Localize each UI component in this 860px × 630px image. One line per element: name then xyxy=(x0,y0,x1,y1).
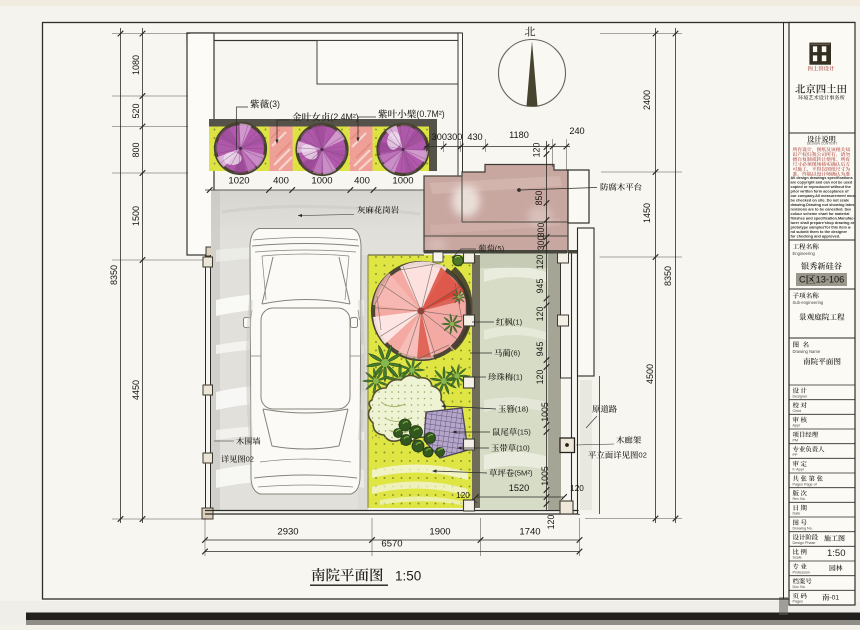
svg-text:Scale: Scale xyxy=(793,556,802,560)
svg-text:1520: 1520 xyxy=(509,483,529,493)
svg-text:1180: 1180 xyxy=(509,130,529,140)
svg-text:turer shall prepare'shop drawi: turer shall prepare'shop drawing or xyxy=(791,221,855,225)
svg-text:our company.All measurement mu: our company.All measurement must xyxy=(791,194,857,198)
svg-text:Drawing Name: Drawing Name xyxy=(793,349,821,354)
svg-text:02: 02 xyxy=(246,455,254,464)
svg-text:120: 120 xyxy=(535,370,545,385)
svg-text:Sub-engineering: Sub-engineering xyxy=(793,300,824,305)
svg-text:1:50: 1:50 xyxy=(827,548,846,559)
svg-text:All design drawings specificat: All design drawings specifications xyxy=(791,176,853,180)
svg-text:Profession: Profession xyxy=(793,570,810,574)
svg-text:(10): (10) xyxy=(516,444,530,453)
svg-text:120: 120 xyxy=(570,484,584,493)
svg-text:1020: 1020 xyxy=(228,175,249,186)
svg-text:1740: 1740 xyxy=(519,526,540,537)
svg-text:colour scheme chart for materi: colour scheme chart for material xyxy=(791,212,850,216)
svg-text:4500: 4500 xyxy=(645,364,655,384)
svg-text:-01: -01 xyxy=(829,595,839,602)
svg-text:PP: PP xyxy=(793,453,798,457)
svg-text:400: 400 xyxy=(354,175,370,186)
svg-text:1005: 1005 xyxy=(540,466,550,486)
svg-text:300: 300 xyxy=(536,236,546,251)
svg-text:(6): (6) xyxy=(511,349,521,358)
svg-text:Chkd: Chkd xyxy=(793,409,802,413)
svg-text:945: 945 xyxy=(535,279,545,294)
svg-text:(0.7M²): (0.7M²) xyxy=(416,109,444,119)
svg-text:finishes and specification.Man: finishes and specification.Manufac- xyxy=(791,217,856,221)
svg-text:(5M²): (5M²) xyxy=(514,469,533,478)
svg-text:nd submit them to the designer: nd submit them to the designer xyxy=(791,230,848,234)
svg-text:240: 240 xyxy=(569,126,584,136)
svg-text:1005: 1005 xyxy=(540,402,550,422)
svg-text:Doc No.: Doc No. xyxy=(793,585,806,589)
svg-text:be checked on site. Do not sca: be checked on site. Do not scale xyxy=(791,199,850,203)
svg-text:850: 850 xyxy=(534,191,544,206)
svg-text:Appr: Appr xyxy=(793,424,802,428)
svg-text:300: 300 xyxy=(536,223,546,238)
svg-text:(15): (15) xyxy=(517,428,531,437)
svg-text:120: 120 xyxy=(535,307,545,322)
svg-text:430: 430 xyxy=(467,132,482,142)
svg-text:DESIGN CONTENT: DESIGN CONTENT xyxy=(807,142,837,146)
svg-text:(2.4M²): (2.4M²) xyxy=(330,112,358,122)
svg-text:02: 02 xyxy=(638,451,647,460)
svg-text:1:50: 1:50 xyxy=(395,569,421,584)
svg-text:2400: 2400 xyxy=(642,90,652,110)
svg-text:1450: 1450 xyxy=(642,203,652,223)
svg-text:for checking and approved.: for checking and approved. xyxy=(791,235,841,239)
svg-text:Designer: Designer xyxy=(793,394,809,398)
svg-text:copied or reproduced without t: copied or reproduced without the xyxy=(791,185,851,189)
svg-text:8350: 8350 xyxy=(663,266,673,286)
svg-text:520: 520 xyxy=(131,103,141,118)
svg-text:Date: Date xyxy=(793,512,801,516)
svg-text:Rev No.: Rev No. xyxy=(793,497,806,501)
svg-text:1000: 1000 xyxy=(392,175,413,186)
svg-text:(1): (1) xyxy=(513,373,523,382)
svg-text:1080: 1080 xyxy=(131,55,141,75)
svg-text:(3): (3) xyxy=(269,99,280,109)
svg-text:2930: 2930 xyxy=(277,526,298,537)
svg-text:revisions are to be cancelled.: revisions are to be cancelled. See xyxy=(791,208,852,212)
svg-text:945: 945 xyxy=(535,342,545,357)
svg-text:300300: 300300 xyxy=(432,132,463,142)
svg-text:120: 120 xyxy=(546,515,556,530)
svg-text:are copyright and can not be u: are copyright and can not be used xyxy=(791,181,853,185)
svg-text:prior written form acceptance: prior written form acceptance of xyxy=(791,190,850,194)
svg-text:Pages Page of: Pages Page of xyxy=(793,482,818,486)
svg-text:120: 120 xyxy=(532,143,542,158)
svg-text:800: 800 xyxy=(131,142,141,157)
svg-text:(18): (18) xyxy=(515,405,529,414)
svg-text:8350: 8350 xyxy=(109,265,119,285)
svg-text:1500: 1500 xyxy=(131,206,141,226)
svg-text:Design Phase: Design Phase xyxy=(793,541,816,545)
svg-text:Pages: Pages xyxy=(793,600,804,604)
svg-text:4450: 4450 xyxy=(131,380,141,400)
svg-text:Drawing No.: Drawing No. xyxy=(793,526,813,530)
svg-text:prototype samples'for this ite: prototype samples'for this item a- xyxy=(791,226,853,230)
svg-text:13-106: 13-106 xyxy=(816,275,845,285)
svg-text:120: 120 xyxy=(535,255,545,270)
svg-text:C: C xyxy=(799,275,806,285)
svg-text:120: 120 xyxy=(456,491,470,500)
svg-text:(5): (5) xyxy=(495,244,505,253)
svg-text:Engineering: Engineering xyxy=(793,251,816,256)
svg-text:PM: PM xyxy=(793,438,799,442)
svg-text:(1): (1) xyxy=(513,318,523,327)
svg-text:F. Appr: F. Appr xyxy=(793,468,805,472)
svg-text:400: 400 xyxy=(273,175,289,186)
svg-text:drawing.Drawing not showing la: drawing.Drawing not showing latest xyxy=(791,203,857,207)
svg-text:1000: 1000 xyxy=(311,175,332,186)
svg-text:6570: 6570 xyxy=(381,538,402,549)
svg-text:1900: 1900 xyxy=(429,526,450,537)
